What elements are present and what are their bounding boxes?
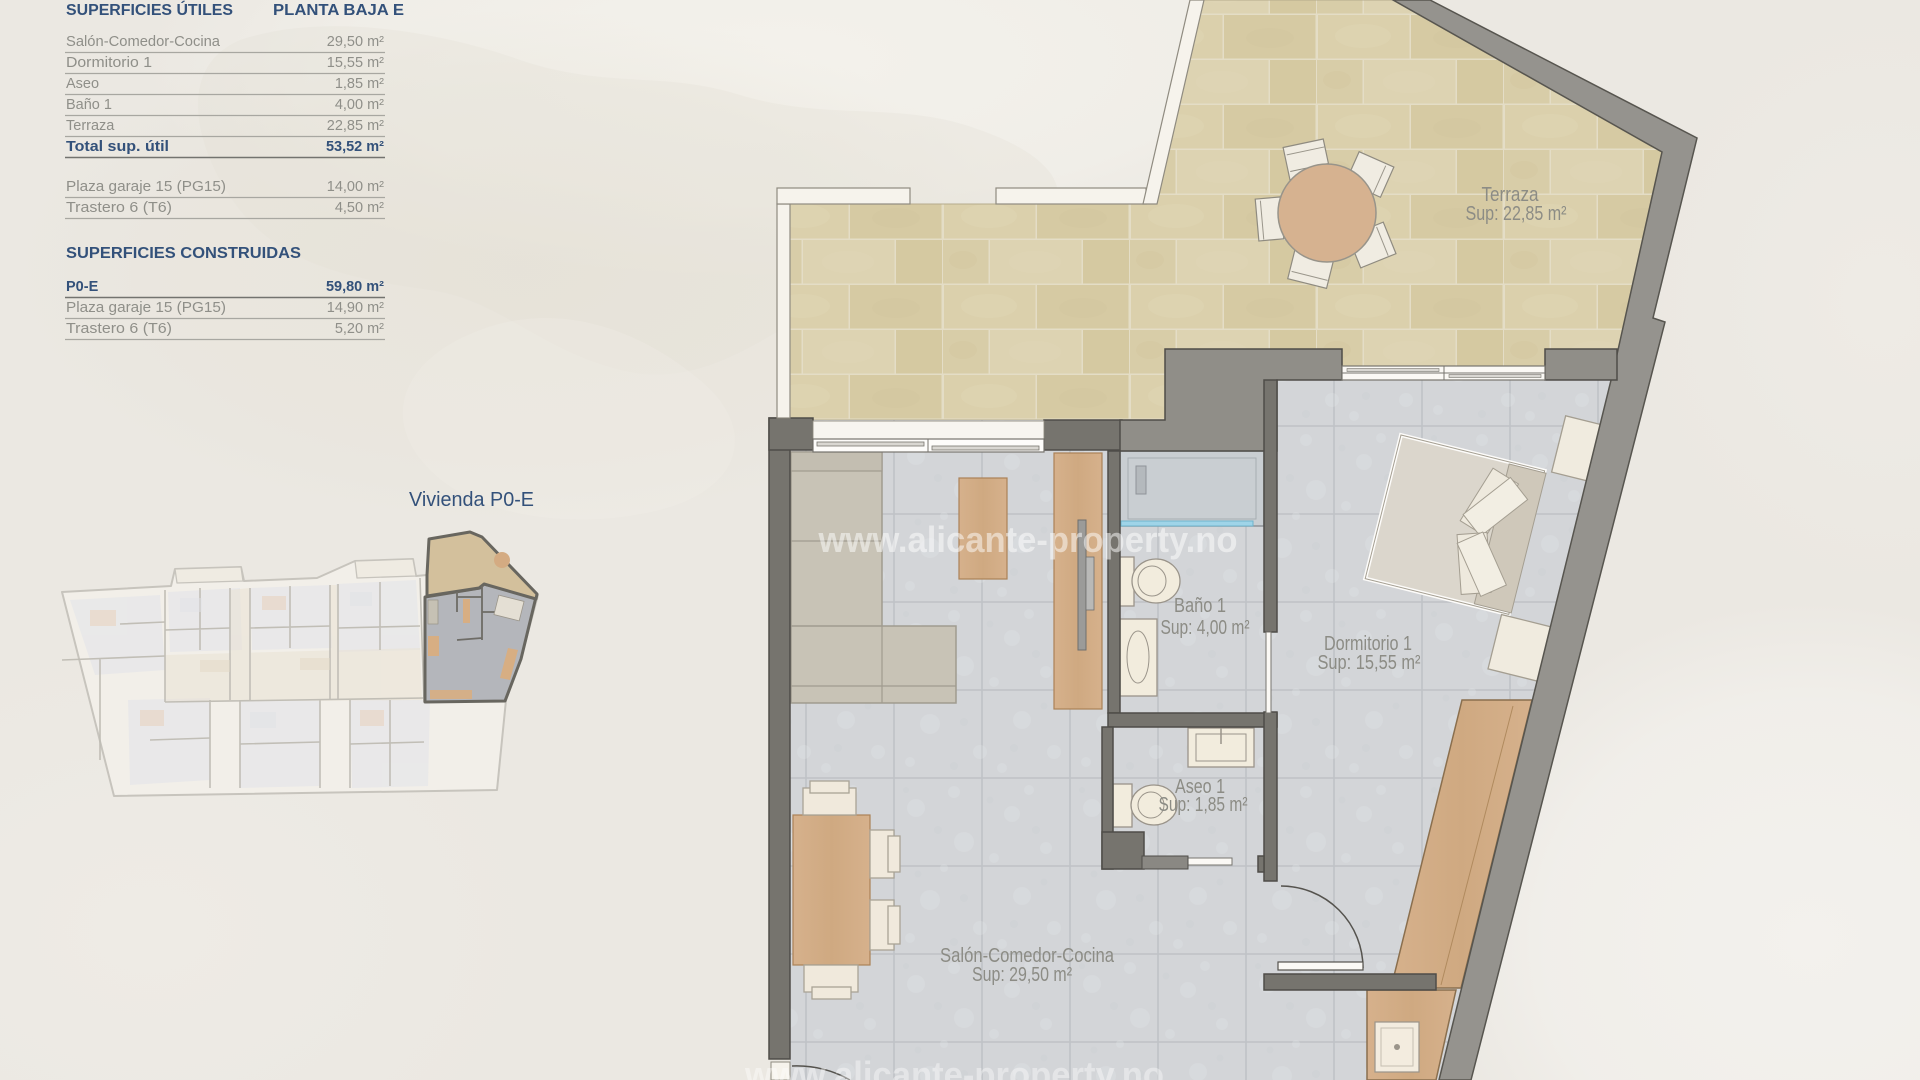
svg-text:Salón-Comedor-Cocina: Salón-Comedor-Cocina xyxy=(66,34,221,50)
svg-text:P0-E: P0-E xyxy=(66,279,99,295)
svg-text:SUPERFICIES ÚTILES: SUPERFICIES ÚTILES xyxy=(66,0,233,19)
svg-text:Sup: 1,85 m²: Sup: 1,85 m² xyxy=(1159,794,1248,816)
svg-text:Trastero 6 (T6): Trastero 6 (T6) xyxy=(66,321,172,337)
svg-text:1,85 m²: 1,85 m² xyxy=(335,76,384,92)
svg-text:53,52 m²: 53,52 m² xyxy=(326,139,384,155)
svg-text:Aseo: Aseo xyxy=(66,76,99,92)
svg-text:Sup: 4,00 m²: Sup: 4,00 m² xyxy=(1161,617,1250,639)
svg-text:PLANTA BAJA E: PLANTA BAJA E xyxy=(273,2,404,19)
svg-text:Baño 1: Baño 1 xyxy=(66,97,112,113)
svg-text:14,00 m²: 14,00 m² xyxy=(327,179,384,195)
svg-text:SUPERFICIES CONSTRUIDAS: SUPERFICIES CONSTRUIDAS xyxy=(66,245,301,262)
svg-text:29,50 m²: 29,50 m² xyxy=(327,34,384,50)
svg-text:Vivienda P0-E: Vivienda P0-E xyxy=(409,489,534,511)
svg-text:Sup: 29,50 m²: Sup: 29,50 m² xyxy=(972,964,1072,986)
svg-text:Trastero 6 (T6): Trastero 6 (T6) xyxy=(66,200,172,216)
svg-text:Plaza garaje 15 (PG15): Plaza garaje 15 (PG15) xyxy=(66,179,226,195)
svg-text:www.alicante-property.no: www.alicante-property.no xyxy=(818,519,1238,560)
svg-text:14,90 m²: 14,90 m² xyxy=(327,300,384,316)
svg-text:4,00 m²: 4,00 m² xyxy=(335,97,384,113)
svg-text:5,20 m²: 5,20 m² xyxy=(335,321,384,337)
svg-text:Dormitorio 1: Dormitorio 1 xyxy=(66,55,152,71)
svg-text:Baño 1: Baño 1 xyxy=(1174,595,1226,617)
svg-text:Plaza garaje 15 (PG15): Plaza garaje 15 (PG15) xyxy=(66,300,226,316)
svg-text:15,55 m²: 15,55 m² xyxy=(327,55,384,71)
svg-text:4,50 m²: 4,50 m² xyxy=(335,200,384,216)
svg-text:Sup: 15,55 m²: Sup: 15,55 m² xyxy=(1318,652,1421,674)
svg-text:Terraza: Terraza xyxy=(66,118,115,134)
svg-text:www.alicante-property.no: www.alicante-property.no xyxy=(744,1054,1164,1080)
svg-text:59,80 m²: 59,80 m² xyxy=(326,279,384,295)
svg-text:Sup: 22,85 m²: Sup: 22,85 m² xyxy=(1466,203,1567,225)
svg-text:Total sup. útil: Total sup. útil xyxy=(66,139,169,155)
svg-text:22,85 m²: 22,85 m² xyxy=(327,118,384,134)
